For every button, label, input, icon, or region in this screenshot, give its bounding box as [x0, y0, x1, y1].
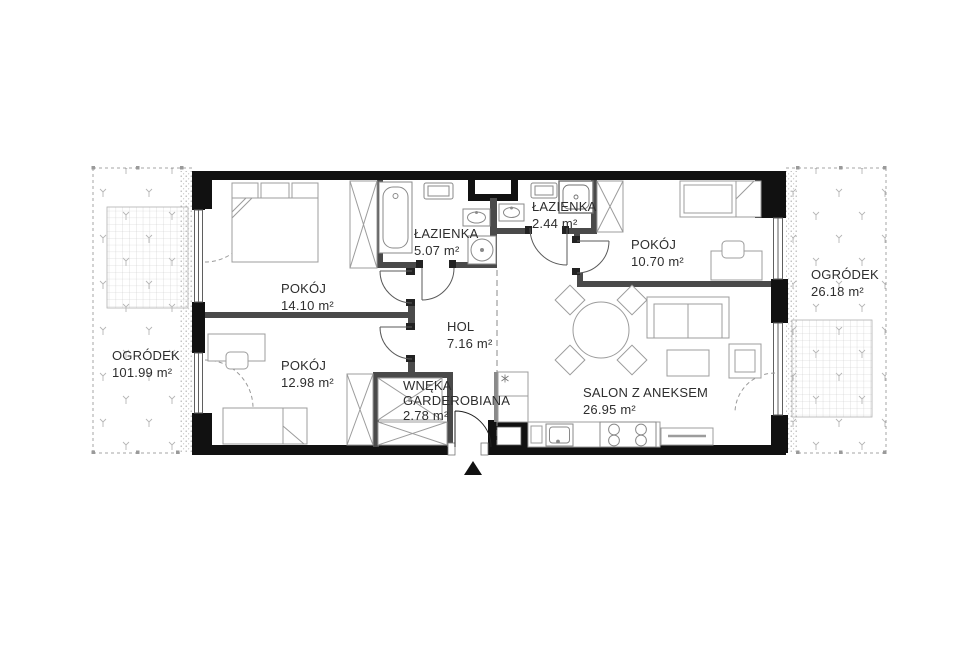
low-cabinet-wneka [378, 422, 447, 445]
floor-plan-drawing: OGRÓDEK 101.99 m² OGRÓDEK 26.18 m² [0, 0, 961, 650]
shaft [475, 180, 511, 194]
entrance-pier-core [497, 427, 521, 445]
label-salon-name: SALON Z ANEKSEM [583, 385, 708, 400]
label-lazienka1-area: 5.07 m² [414, 243, 460, 258]
coffee-table [667, 350, 709, 376]
double-bed [232, 183, 318, 262]
garden-right-terrace [792, 320, 872, 417]
label-hol-name: HOL [447, 319, 474, 334]
bathroom2-sink [499, 204, 524, 221]
garden-left-terrace [107, 207, 188, 308]
garden-right-label: OGRÓDEK [811, 267, 879, 282]
single-bed-pokoj3 [680, 181, 761, 217]
single-bed-pokoj2 [223, 408, 307, 444]
bathroom1-sink [463, 209, 490, 226]
tv-sideboard [661, 428, 713, 445]
label-lazienka1-name: ŁAZIENKA [414, 226, 479, 241]
wardrobe-pokoj3 [597, 181, 623, 232]
label-pokoj2-name: POKÓJ [281, 358, 326, 373]
garden-left: OGRÓDEK 101.99 m² [92, 166, 193, 454]
label-wneka-line1: WNĘKA [403, 378, 452, 393]
label-pokoj1-area: 14.10 m² [281, 298, 334, 313]
wardrobe-pokoj2 [347, 374, 373, 445]
label-pokoj2-area: 12.98 m² [281, 375, 334, 390]
sofa [647, 297, 729, 338]
window-pokoj2-left [194, 353, 204, 413]
bathtub [379, 182, 412, 253]
window-pokoj3-right [773, 218, 784, 279]
garden-right: OGRÓDEK 26.18 m² [786, 166, 887, 454]
label-salon-area: 26.95 m² [583, 402, 636, 417]
armchair [729, 344, 761, 378]
label-lazienka2-area: 2.44 m² [532, 216, 578, 231]
label-wneka-area: 2.78 m² [403, 408, 449, 423]
bathroom1-cabinet [424, 183, 453, 199]
label-pokoj3-name: POKÓJ [631, 237, 676, 252]
label-pokoj3-area: 10.70 m² [631, 254, 684, 269]
bathroom2-cabinet [531, 183, 557, 198]
window-salon-right [773, 323, 784, 415]
stove [600, 422, 656, 447]
garden-left-label: OGRÓDEK [112, 348, 180, 363]
label-hol-area: 7.16 m² [447, 336, 493, 351]
kitchen-sink [546, 424, 573, 446]
label-wneka-line2: GARDEROBIANA [403, 393, 510, 408]
floor-plan-page: OGRÓDEK 101.99 m² OGRÓDEK 26.18 m² [0, 0, 961, 650]
window-pokoj1-left [194, 210, 204, 302]
label-pokoj1-name: POKÓJ [281, 281, 326, 296]
garden-right-area: 26.18 m² [811, 284, 864, 299]
garden-left-area: 101.99 m² [112, 365, 173, 380]
label-lazienka2-name: ŁAZIENKA [532, 199, 597, 214]
facade-strip-left [180, 171, 192, 453]
wardrobe-pokoj1 [350, 181, 377, 268]
